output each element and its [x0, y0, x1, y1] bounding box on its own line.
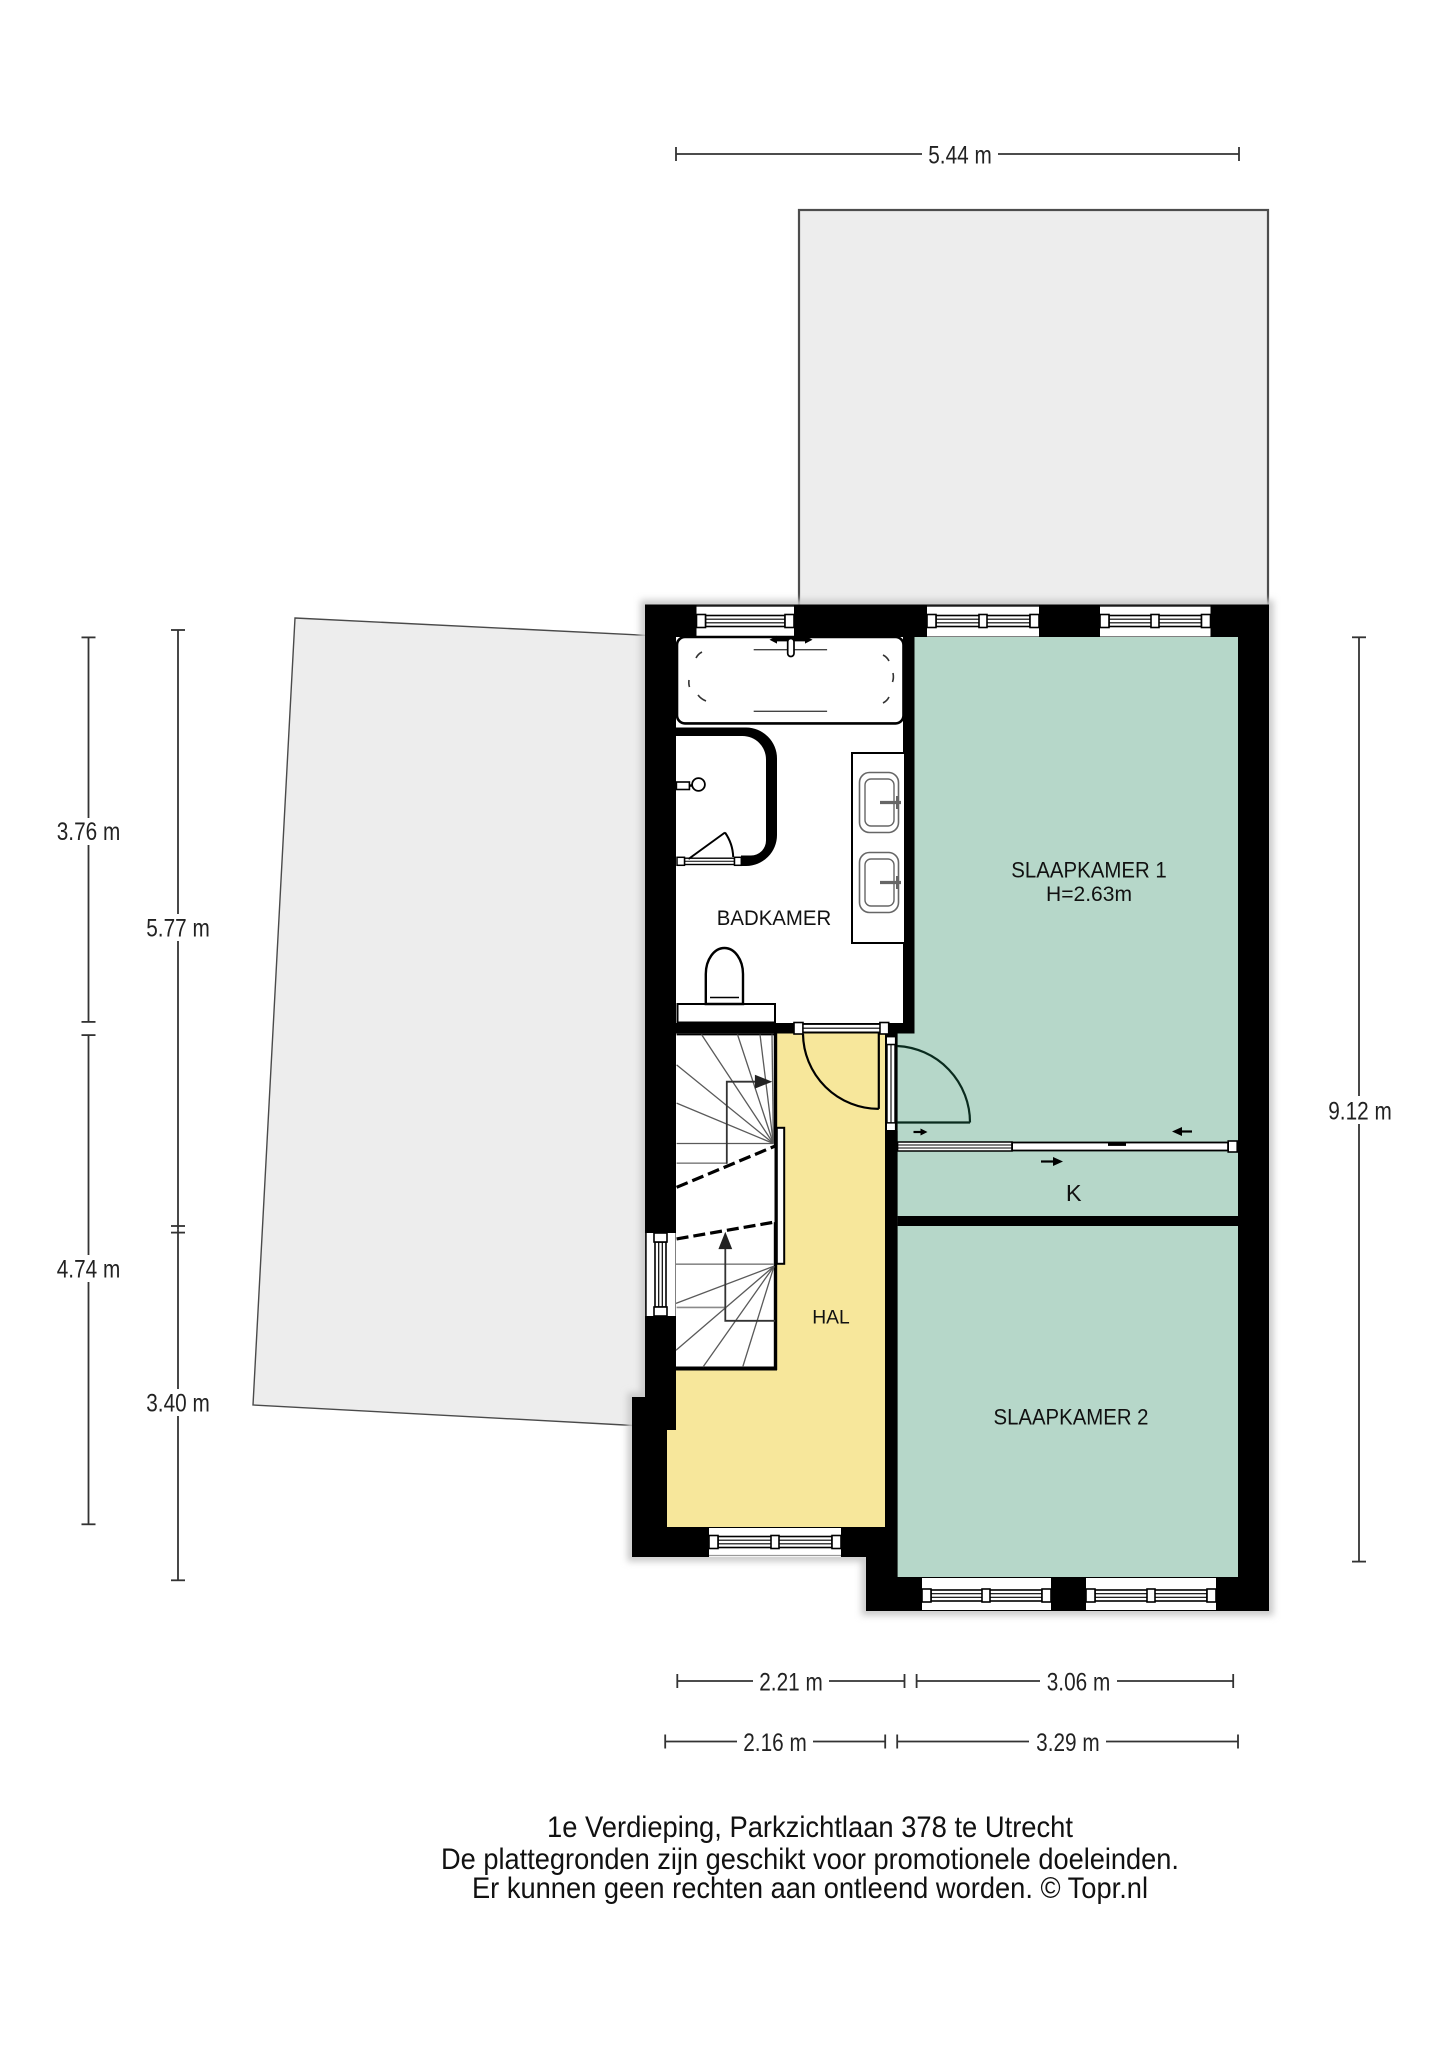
svg-text:HAL: HAL	[812, 1307, 850, 1329]
svg-text:K: K	[1066, 1180, 1082, 1206]
svg-text:2.21 m: 2.21 m	[759, 1669, 823, 1697]
svg-text:3.29 m: 3.29 m	[1036, 1729, 1100, 1757]
svg-text:3.76 m: 3.76 m	[57, 818, 121, 846]
svg-text:SLAAPKAMER 1: SLAAPKAMER 1	[1011, 858, 1167, 883]
svg-text:1e Verdieping, Parkzichtlaan 3: 1e Verdieping, Parkzichtlaan 378 te Utre…	[547, 1811, 1074, 1844]
svg-text:9.12 m: 9.12 m	[1328, 1098, 1392, 1126]
svg-text:5.44 m: 5.44 m	[928, 142, 992, 170]
svg-text:3.40 m: 3.40 m	[146, 1390, 210, 1418]
svg-text:SLAAPKAMER 2: SLAAPKAMER 2	[994, 1405, 1149, 1430]
svg-text:3.06 m: 3.06 m	[1047, 1669, 1111, 1697]
svg-text:H=2.63m: H=2.63m	[1046, 882, 1132, 906]
svg-text:Er kunnen geen rechten aan ont: Er kunnen geen rechten aan ontleend word…	[472, 1872, 1148, 1905]
svg-text:4.74 m: 4.74 m	[57, 1256, 121, 1284]
svg-text:BADKAMER: BADKAMER	[717, 906, 832, 930]
svg-text:5.77 m: 5.77 m	[146, 915, 210, 943]
svg-text:2.16 m: 2.16 m	[743, 1729, 807, 1757]
